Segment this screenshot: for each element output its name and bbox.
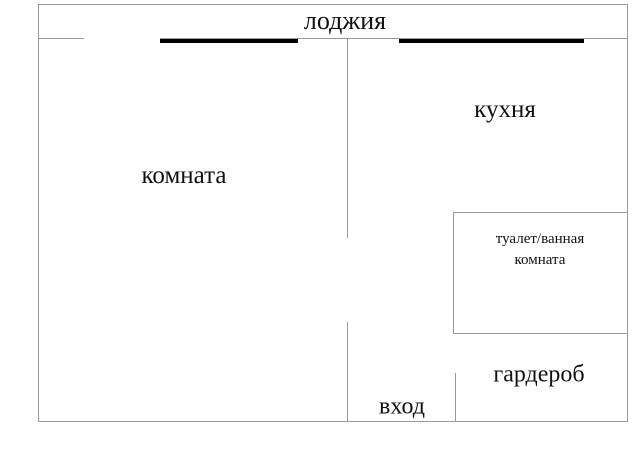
bathroom-label-line2: комната — [496, 250, 584, 271]
floor-plan: лоджия комната кухня туалет/ванная комна… — [0, 0, 640, 450]
window-bar-kitchen — [399, 39, 584, 43]
window-bar-room — [160, 39, 298, 43]
room-label: комната — [142, 162, 227, 190]
entrance-label: вход — [379, 394, 425, 421]
wardrobe-label: гардероб — [493, 362, 584, 389]
center-wall-lower — [347, 322, 348, 421]
center-wall-upper — [347, 38, 348, 238]
loggia-label: лоджия — [304, 6, 386, 36]
loggia-wall-left-stub — [38, 38, 84, 39]
bathroom-label-line1: туалет/ванная — [496, 229, 584, 250]
kitchen-label: кухня — [474, 96, 536, 124]
bathroom-label: туалет/ванная комната — [496, 229, 584, 271]
wardrobe-wall — [455, 373, 456, 421]
